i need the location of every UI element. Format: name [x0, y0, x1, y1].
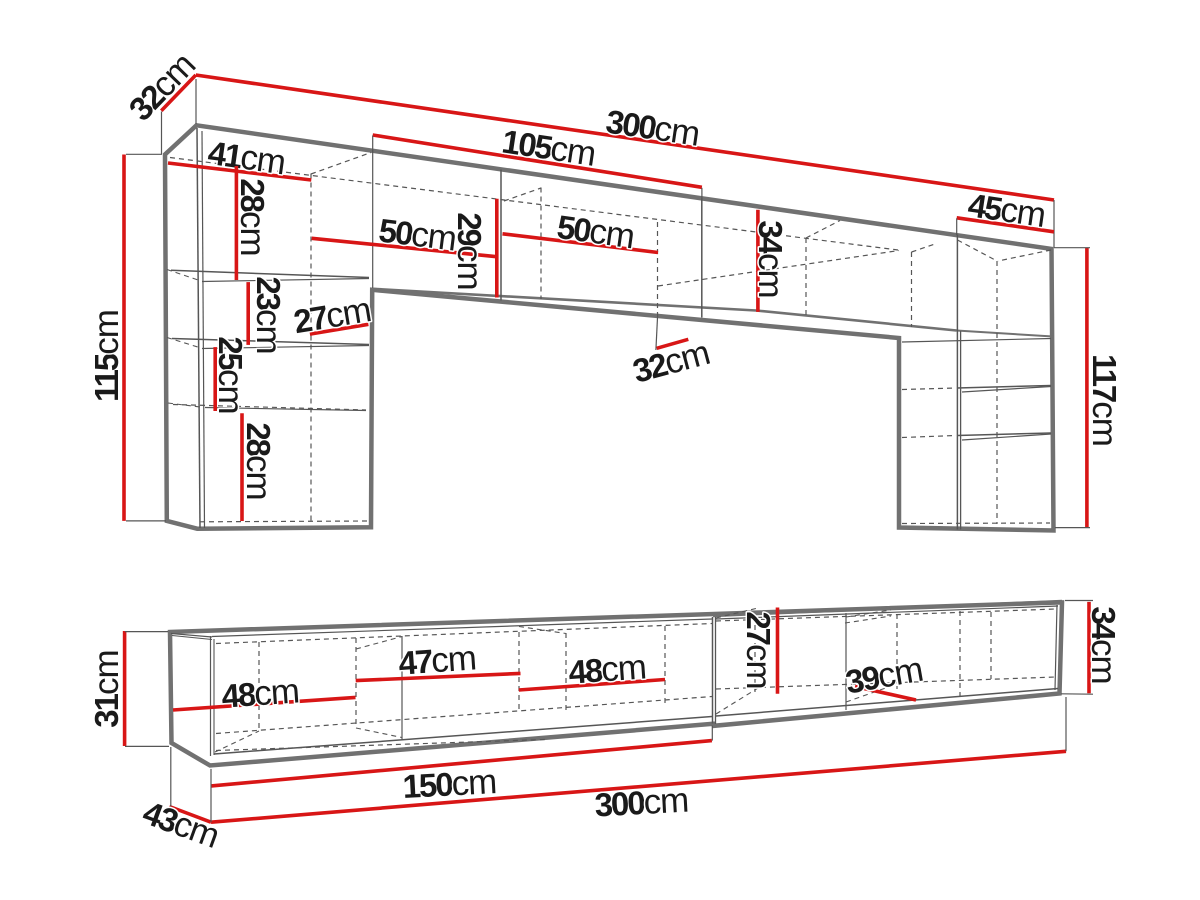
- svg-text:25cm: 25cm: [211, 336, 250, 413]
- svg-text:29cm: 29cm: [450, 212, 489, 289]
- svg-text:27cm: 27cm: [739, 611, 778, 688]
- svg-text:47cm: 47cm: [397, 638, 477, 682]
- svg-text:115cm: 115cm: [87, 310, 126, 402]
- svg-text:117cm: 117cm: [1085, 354, 1124, 446]
- svg-text:28cm: 28cm: [233, 178, 272, 255]
- svg-text:23cm: 23cm: [249, 276, 288, 353]
- svg-text:34cm: 34cm: [1084, 606, 1123, 683]
- svg-text:31cm: 31cm: [87, 650, 126, 727]
- svg-text:300cm: 300cm: [594, 781, 690, 825]
- svg-text:48cm: 48cm: [220, 671, 300, 715]
- svg-text:28cm: 28cm: [239, 422, 278, 499]
- svg-text:48cm: 48cm: [567, 647, 647, 691]
- svg-text:34cm: 34cm: [751, 220, 790, 297]
